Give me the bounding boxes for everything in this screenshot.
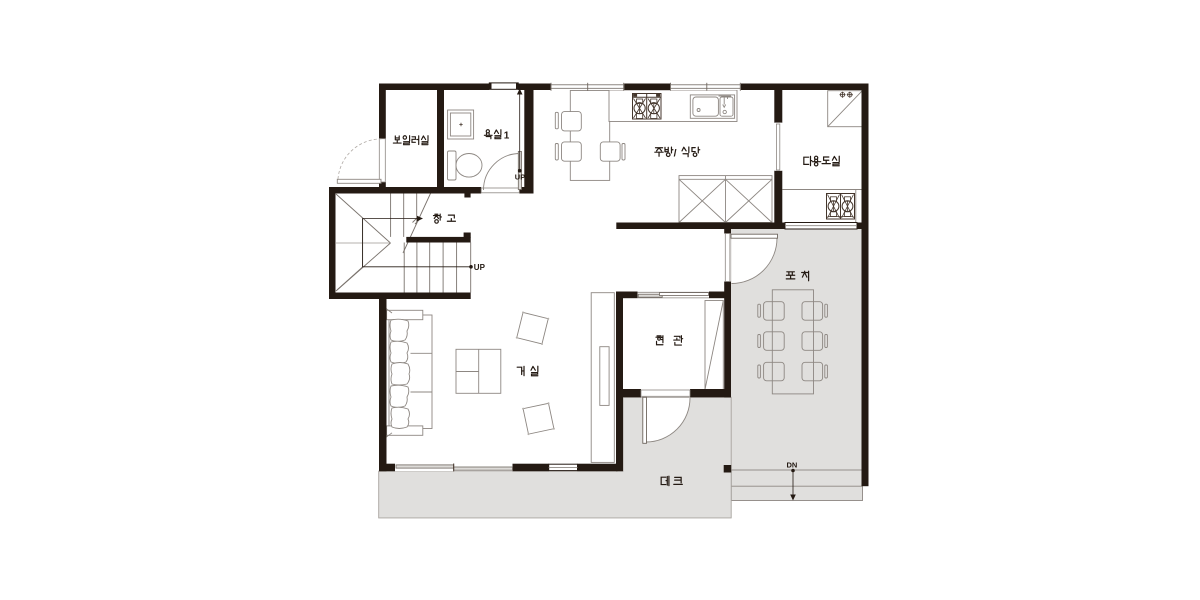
svg-text:UP: UP (474, 263, 486, 272)
svg-text:UP: UP (515, 173, 525, 182)
svg-text:DN: DN (787, 460, 798, 469)
svg-text:1: 1 (504, 130, 510, 141)
svg-text:/: / (674, 148, 677, 160)
